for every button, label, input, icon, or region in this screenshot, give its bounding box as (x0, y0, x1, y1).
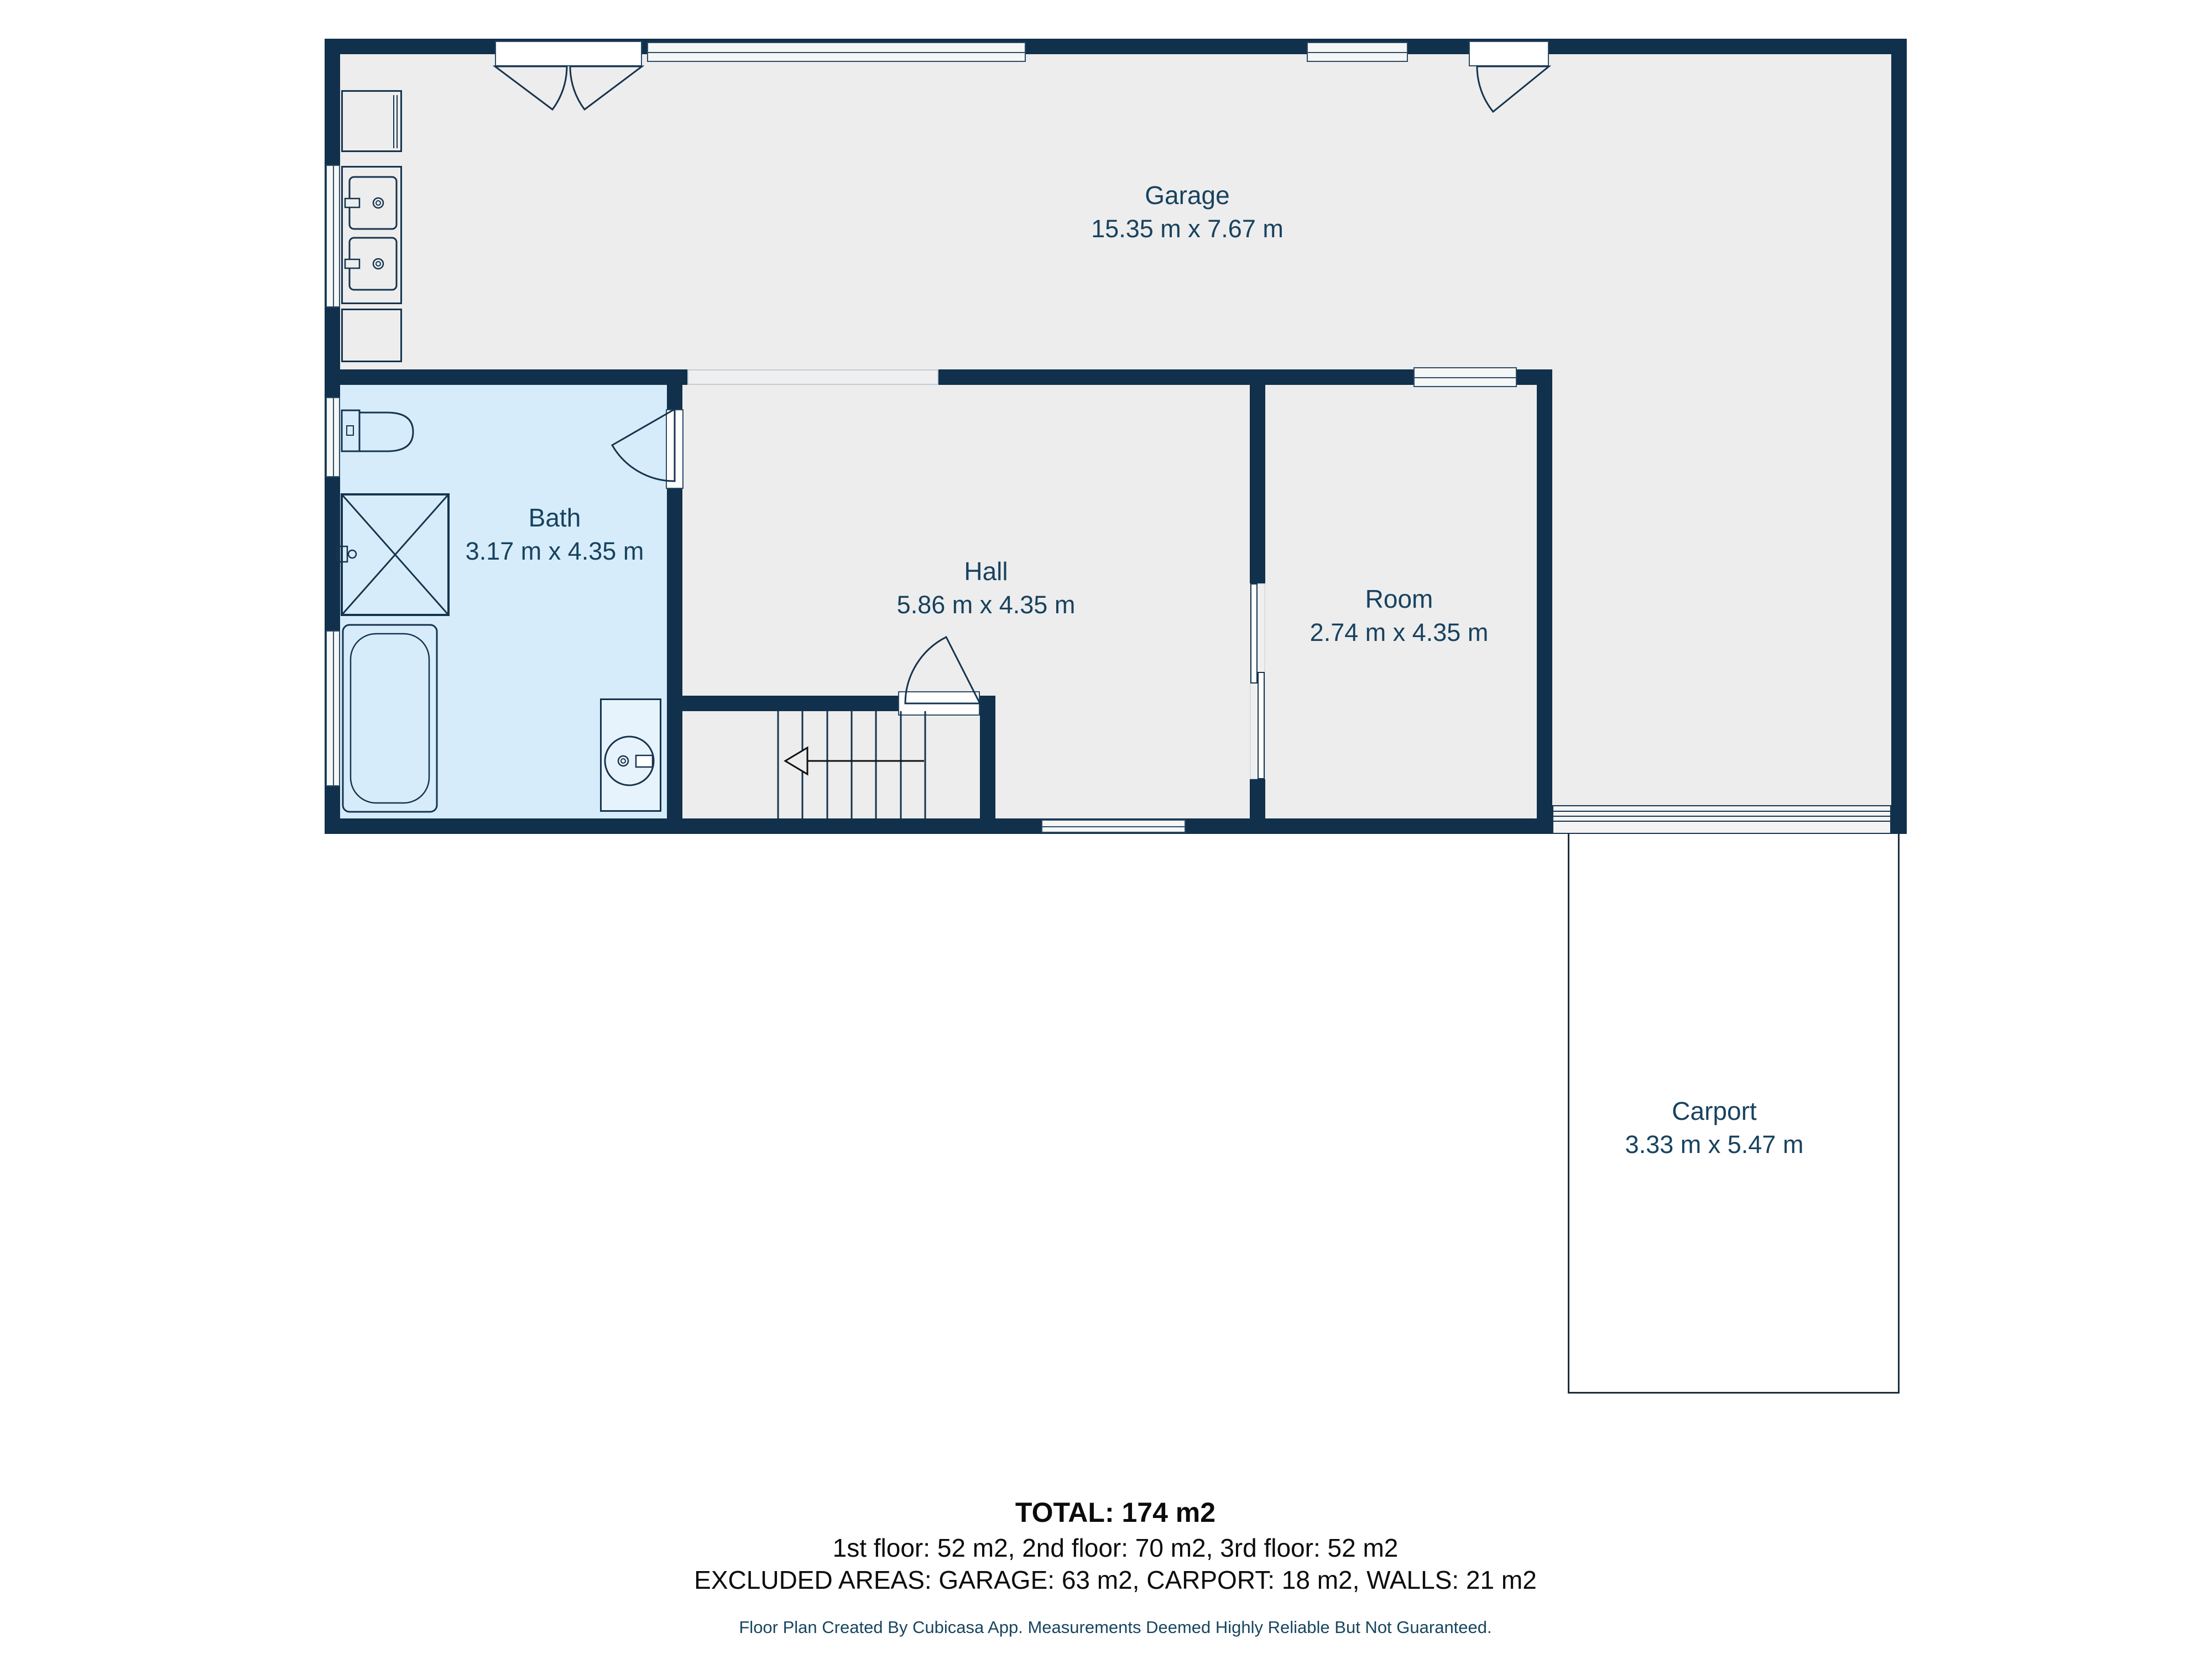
room-dims: 5.86 m x 4.35 m (897, 588, 1076, 622)
room-label: Room 2.74 m x 4.35 m (1310, 582, 1489, 649)
floors-area-text: 1st floor: 52 m2, 2nd floor: 70 m2, 3rd … (833, 1533, 1399, 1563)
room-dims: 3.33 m x 5.47 m (1625, 1128, 1804, 1161)
bath-label: Bath 3.17 m x 4.35 m (466, 500, 644, 568)
cabinet-top (341, 90, 402, 152)
window-garage-top-long (647, 42, 1026, 62)
single-door-header (1469, 41, 1549, 66)
room-name: Hall (897, 554, 1076, 588)
bath-door-leaf (666, 409, 684, 489)
room-name: Garage (1091, 178, 1284, 212)
total-area-text: TOTAL: 174 m2 (1015, 1496, 1215, 1528)
wall-stairs-top (682, 696, 898, 711)
double-door-header (495, 41, 642, 66)
wall-right (1891, 39, 1907, 834)
hall-label: Hall 5.86 m x 4.35 m (897, 554, 1076, 622)
room-dims: 15.35 m x 7.67 m (1091, 212, 1284, 246)
room-name: Bath (466, 500, 644, 535)
stairs-door-leaf (898, 691, 980, 716)
room-name: Room (1310, 582, 1489, 616)
window-garage-top-right (1307, 42, 1408, 62)
washer-block (600, 698, 661, 812)
garage-door (1552, 805, 1891, 834)
window-bath-left-lower (326, 630, 340, 786)
sliding-door-panel-a (1250, 583, 1258, 684)
carport-label: Carport 3.33 m x 5.47 m (1625, 1094, 1804, 1161)
room-name: Carport (1625, 1094, 1804, 1128)
sliding-door-panel-b (1258, 672, 1265, 779)
excluded-area-text: EXCLUDED AREAS: GARAGE: 63 m2, CARPORT: … (694, 1565, 1537, 1595)
window-room-top (1413, 367, 1517, 387)
room-dims: 2.74 m x 4.35 m (1310, 616, 1489, 649)
cubicasa-disclaimer: Floor Plan Created By Cubicasa App. Meas… (739, 1618, 1491, 1637)
window-bath-left-upper (326, 397, 340, 477)
opening-garage-hall (687, 369, 938, 385)
floor-plan-page: Garage 15.35 m x 7.67 m Bath 3.17 m x 4.… (0, 0, 2212, 1659)
room-dims: 3.17 m x 4.35 m (466, 535, 644, 568)
wall-divider-garage (340, 369, 1552, 385)
garage-label: Garage 15.35 m x 7.67 m (1091, 178, 1284, 246)
wall-room-east (1537, 385, 1552, 818)
window-garage-left (326, 165, 340, 307)
sink-counter (341, 166, 402, 304)
cabinet-bottom (341, 309, 402, 362)
wall-stairs-right (980, 696, 995, 818)
window-hall-bottom (1041, 820, 1186, 833)
